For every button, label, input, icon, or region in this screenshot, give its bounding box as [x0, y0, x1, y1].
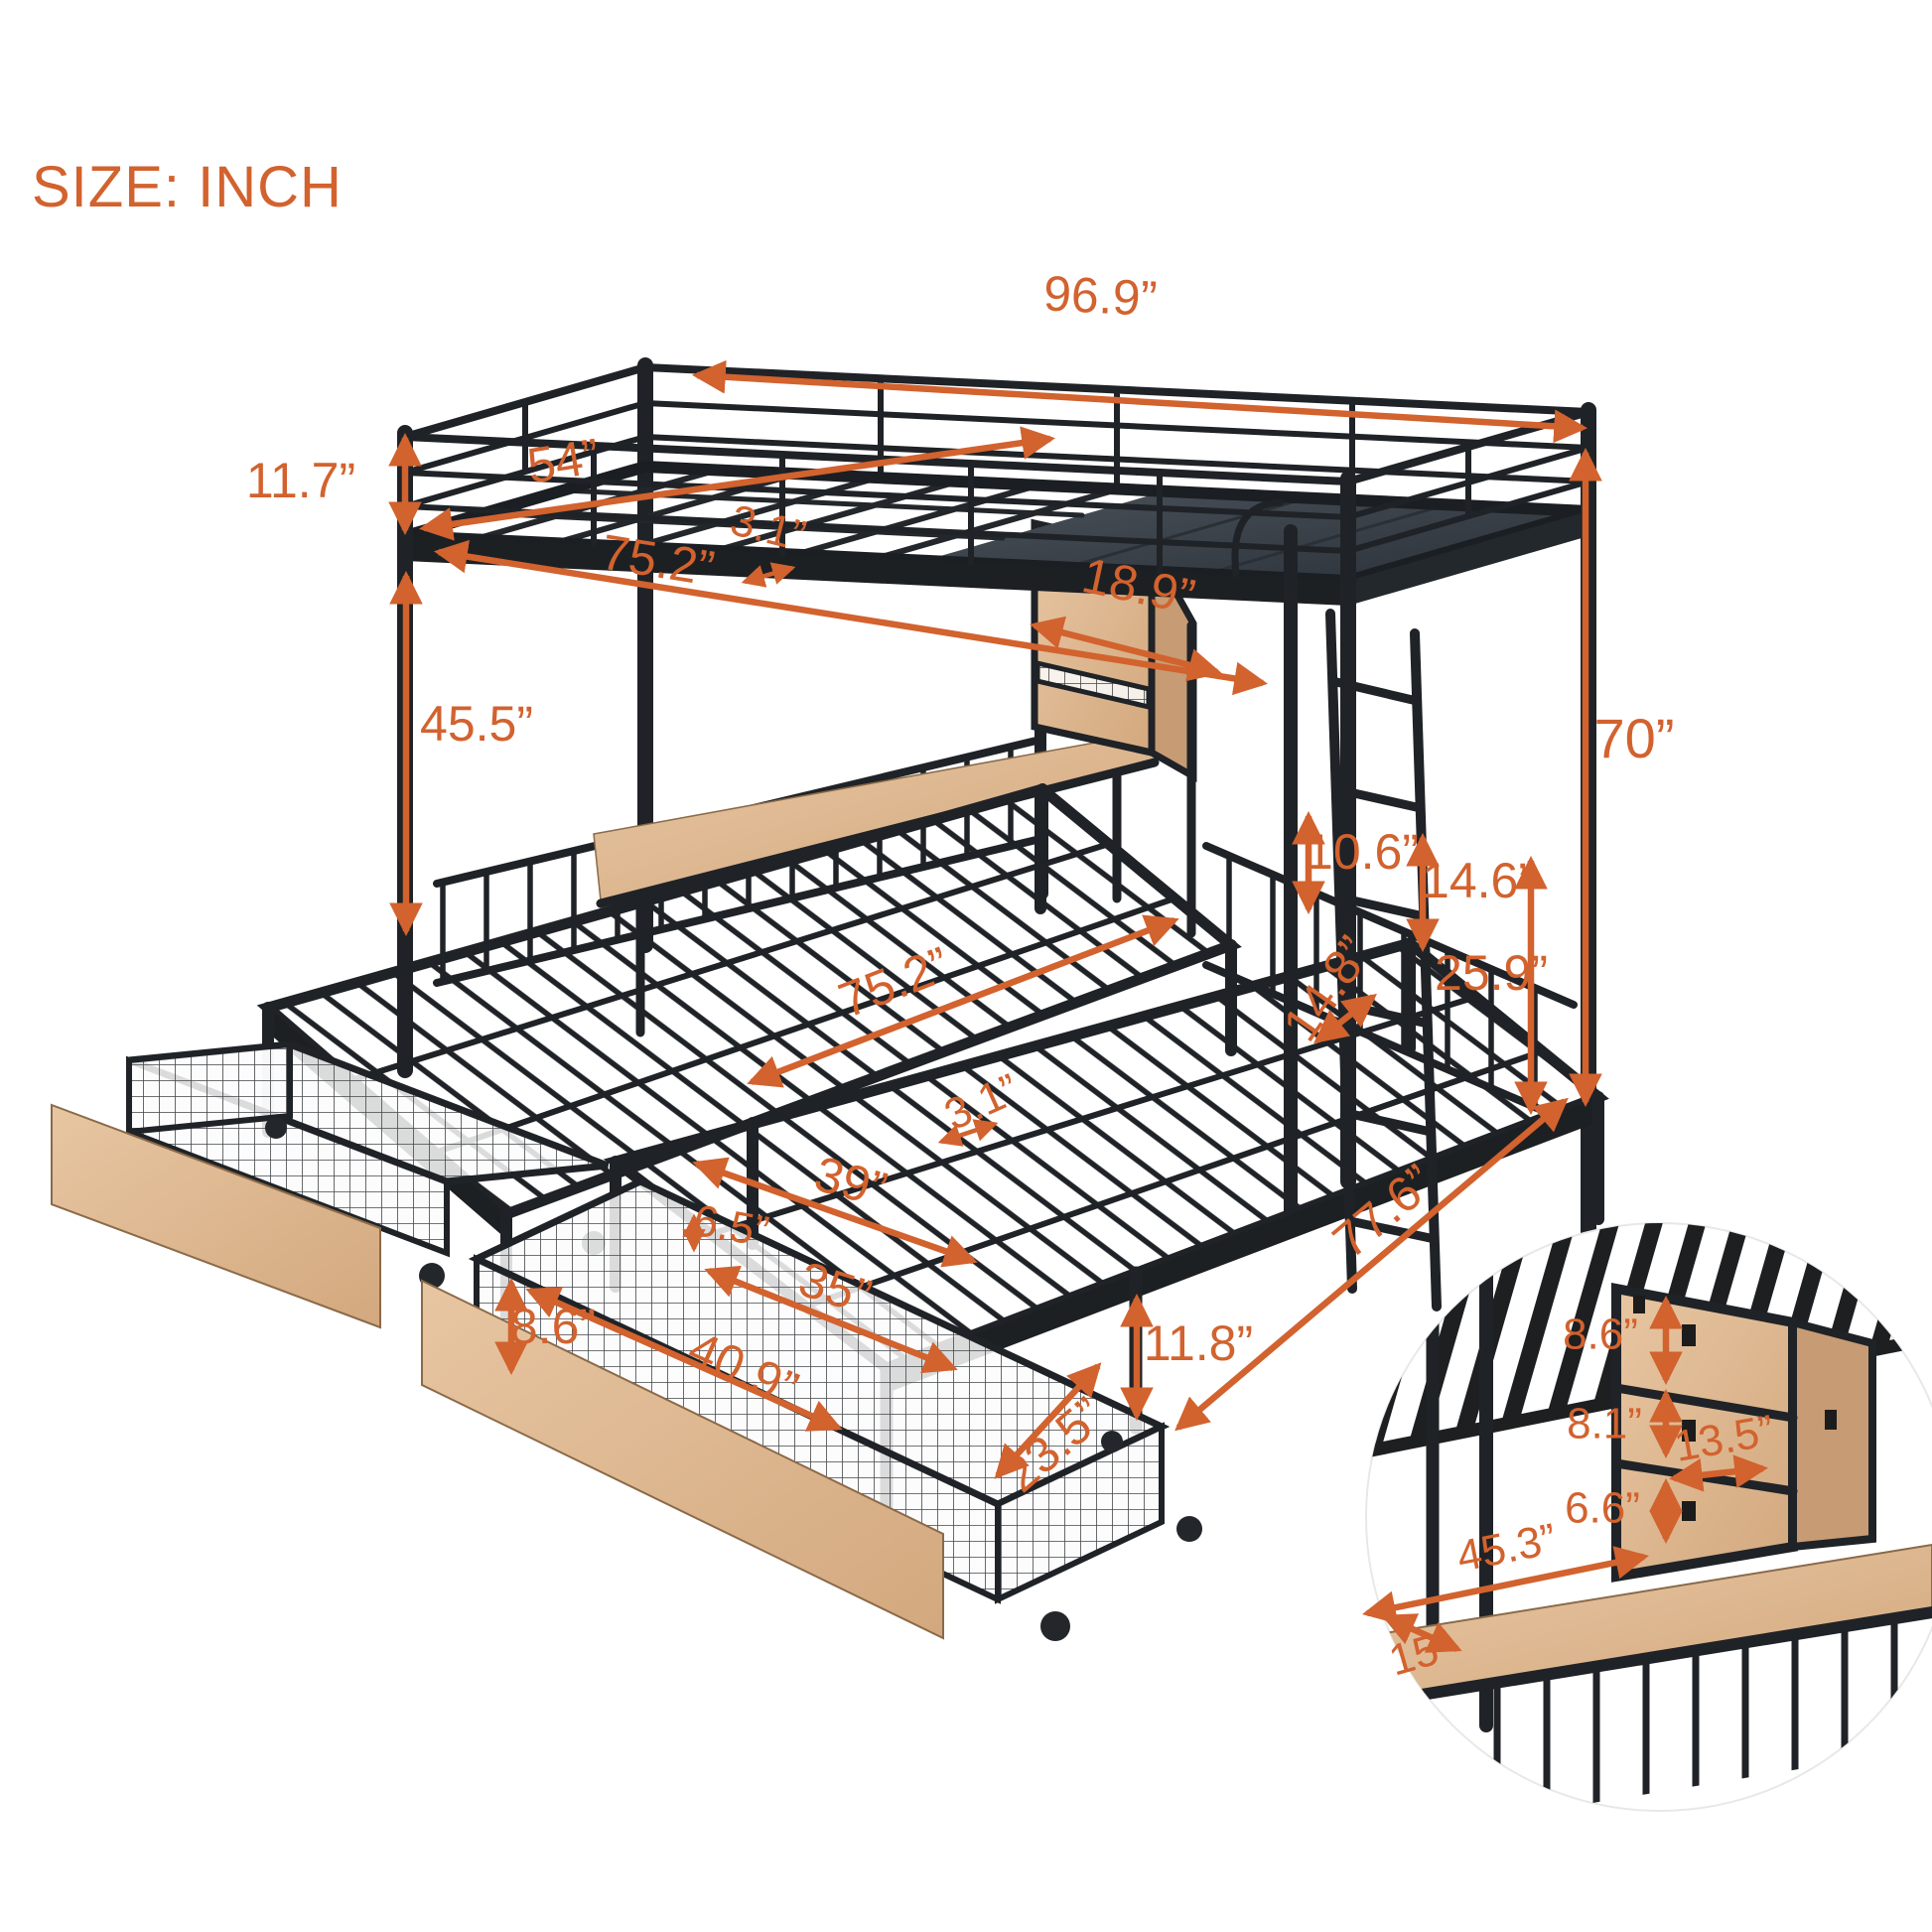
- size-unit-title: SIZE: INCH: [32, 155, 343, 219]
- dim-label: 10.6”: [1306, 824, 1419, 880]
- dim-11-8: 11.8”: [1137, 1299, 1253, 1416]
- dim-label: 8.6”: [1563, 1311, 1638, 1359]
- dim-label: 8.6”: [510, 1299, 596, 1354]
- dim-label: 96.9”: [1042, 265, 1159, 327]
- dim-70: 70”: [1586, 453, 1674, 1102]
- dim-11-7: 11.7”: [246, 438, 405, 530]
- bunk-bed-dimension-diagram: SIZE: INCH: [0, 0, 1932, 1932]
- dim-14-6: 14.6”: [1422, 838, 1535, 947]
- dim-label: 70”: [1594, 707, 1675, 769]
- dim-label: 6.6”: [1565, 1484, 1640, 1533]
- caster-wheel: [1040, 1611, 1070, 1641]
- dim-label: 8.1”: [1567, 1400, 1642, 1449]
- dim-label: 25.9”: [1435, 945, 1548, 1001]
- dim-label: 11.7”: [246, 453, 355, 508]
- shelf-detail-inset: 8.6” 8.1” 13.5” 6.6” 45.3” 15”: [1366, 1223, 1932, 1825]
- caster-wheel: [1176, 1516, 1202, 1542]
- dim-label: 45.5”: [420, 696, 533, 752]
- dim-label: 14.6”: [1422, 853, 1535, 908]
- dim-label: 54”: [523, 428, 603, 494]
- caster-wheel: [265, 1117, 287, 1139]
- dim-label: 11.8”: [1144, 1315, 1253, 1371]
- dimension-diagram-page: SIZE: INCH: [0, 0, 1932, 1932]
